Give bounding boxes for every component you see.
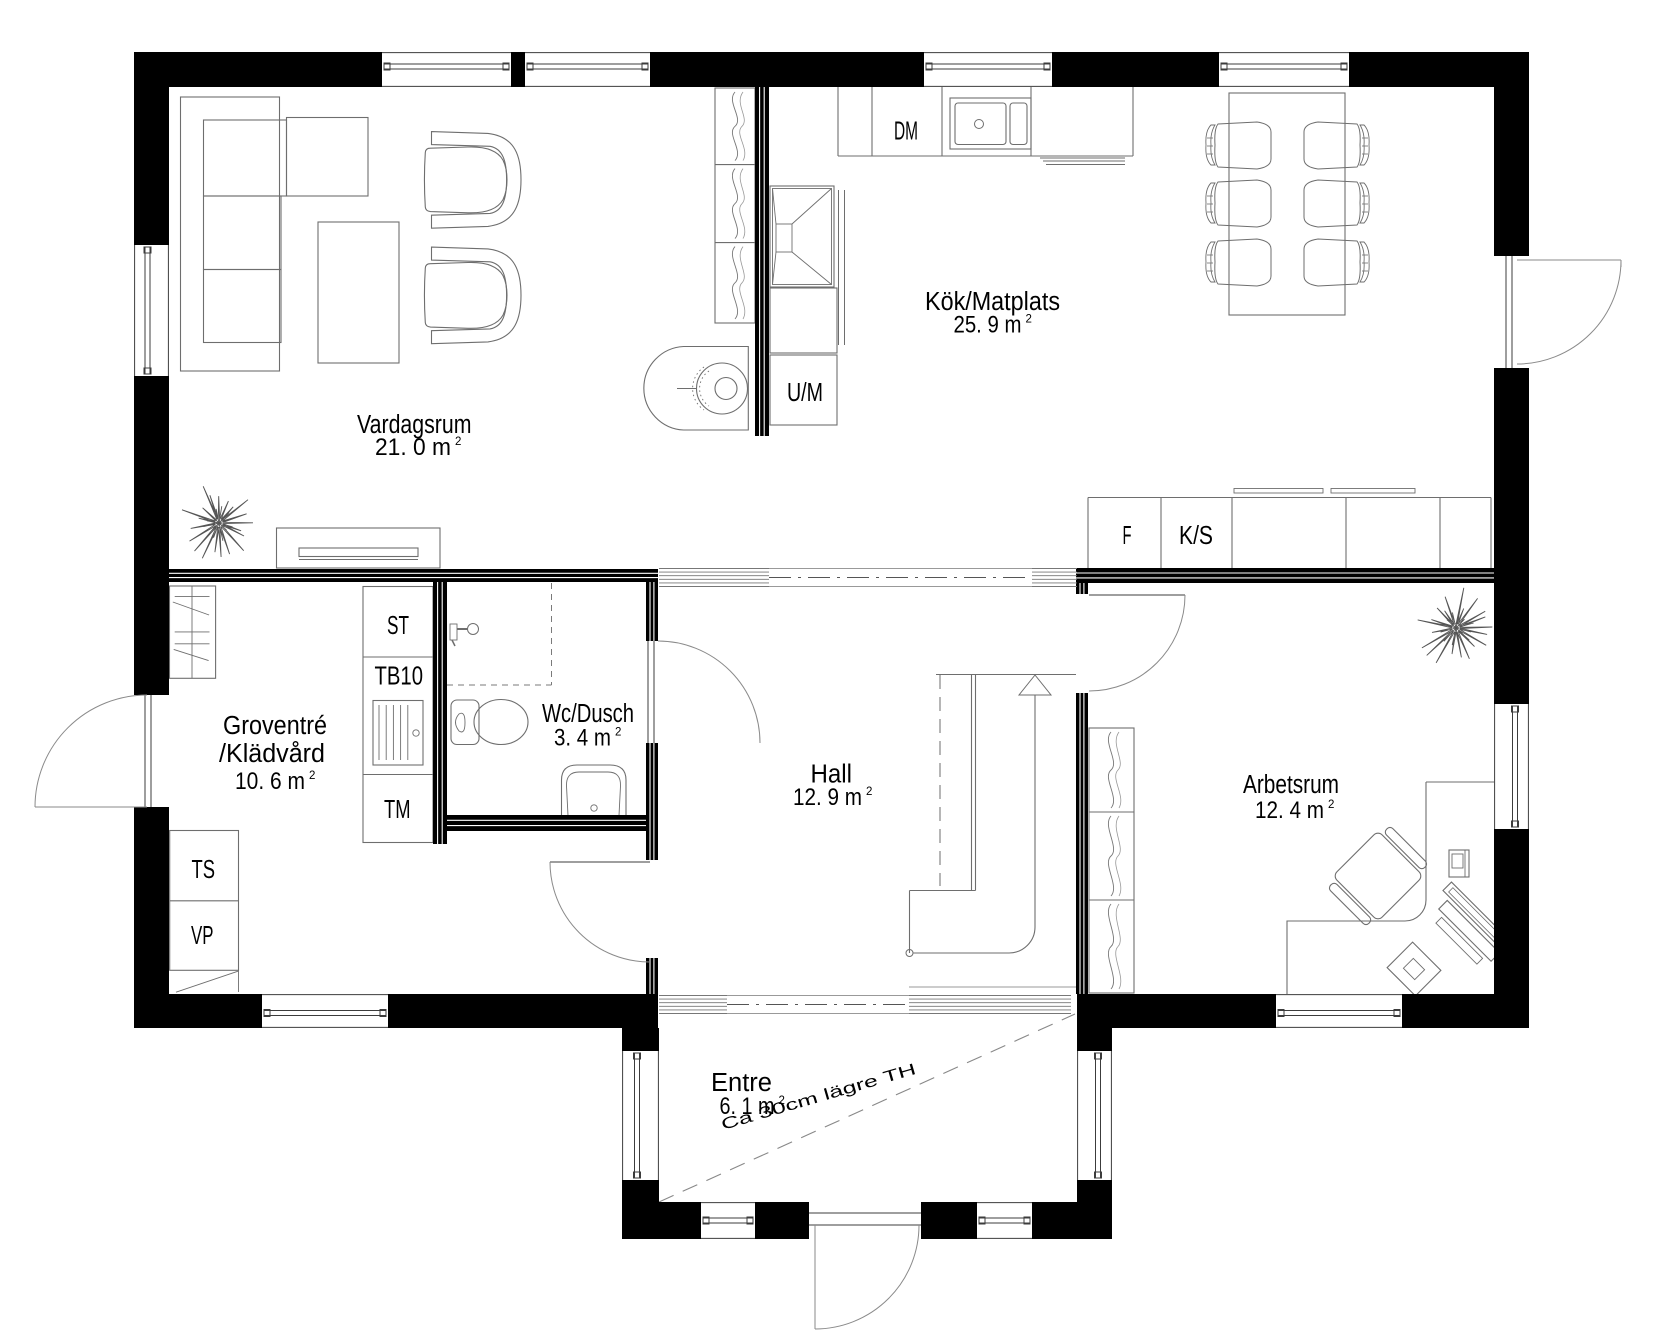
- svg-text:F: F: [1123, 522, 1132, 550]
- svg-text:Groventré: Groventré: [223, 712, 327, 740]
- svg-text:25. 9 m2: 25. 9 m2: [954, 312, 1032, 339]
- svg-text:U/M: U/M: [787, 379, 823, 407]
- svg-text:K/S: K/S: [1179, 522, 1213, 550]
- svg-text:/Klädvård: /Klädvård: [219, 740, 325, 768]
- svg-text:12. 9 m2: 12. 9 m2: [793, 784, 872, 811]
- svg-text:ST: ST: [387, 612, 409, 640]
- svg-text:Arbetsrum: Arbetsrum: [1243, 771, 1339, 799]
- svg-text:TS: TS: [192, 856, 216, 884]
- svg-text:TB10: TB10: [375, 663, 424, 691]
- svg-text:VP: VP: [191, 922, 214, 950]
- svg-text:DM: DM: [894, 118, 918, 146]
- svg-text:TM: TM: [384, 796, 411, 824]
- svg-text:12. 4 m2: 12. 4 m2: [1255, 797, 1334, 824]
- svg-text:10. 6 m2: 10. 6 m2: [235, 768, 315, 795]
- svg-text:21. 0 m2: 21. 0 m2: [375, 434, 461, 461]
